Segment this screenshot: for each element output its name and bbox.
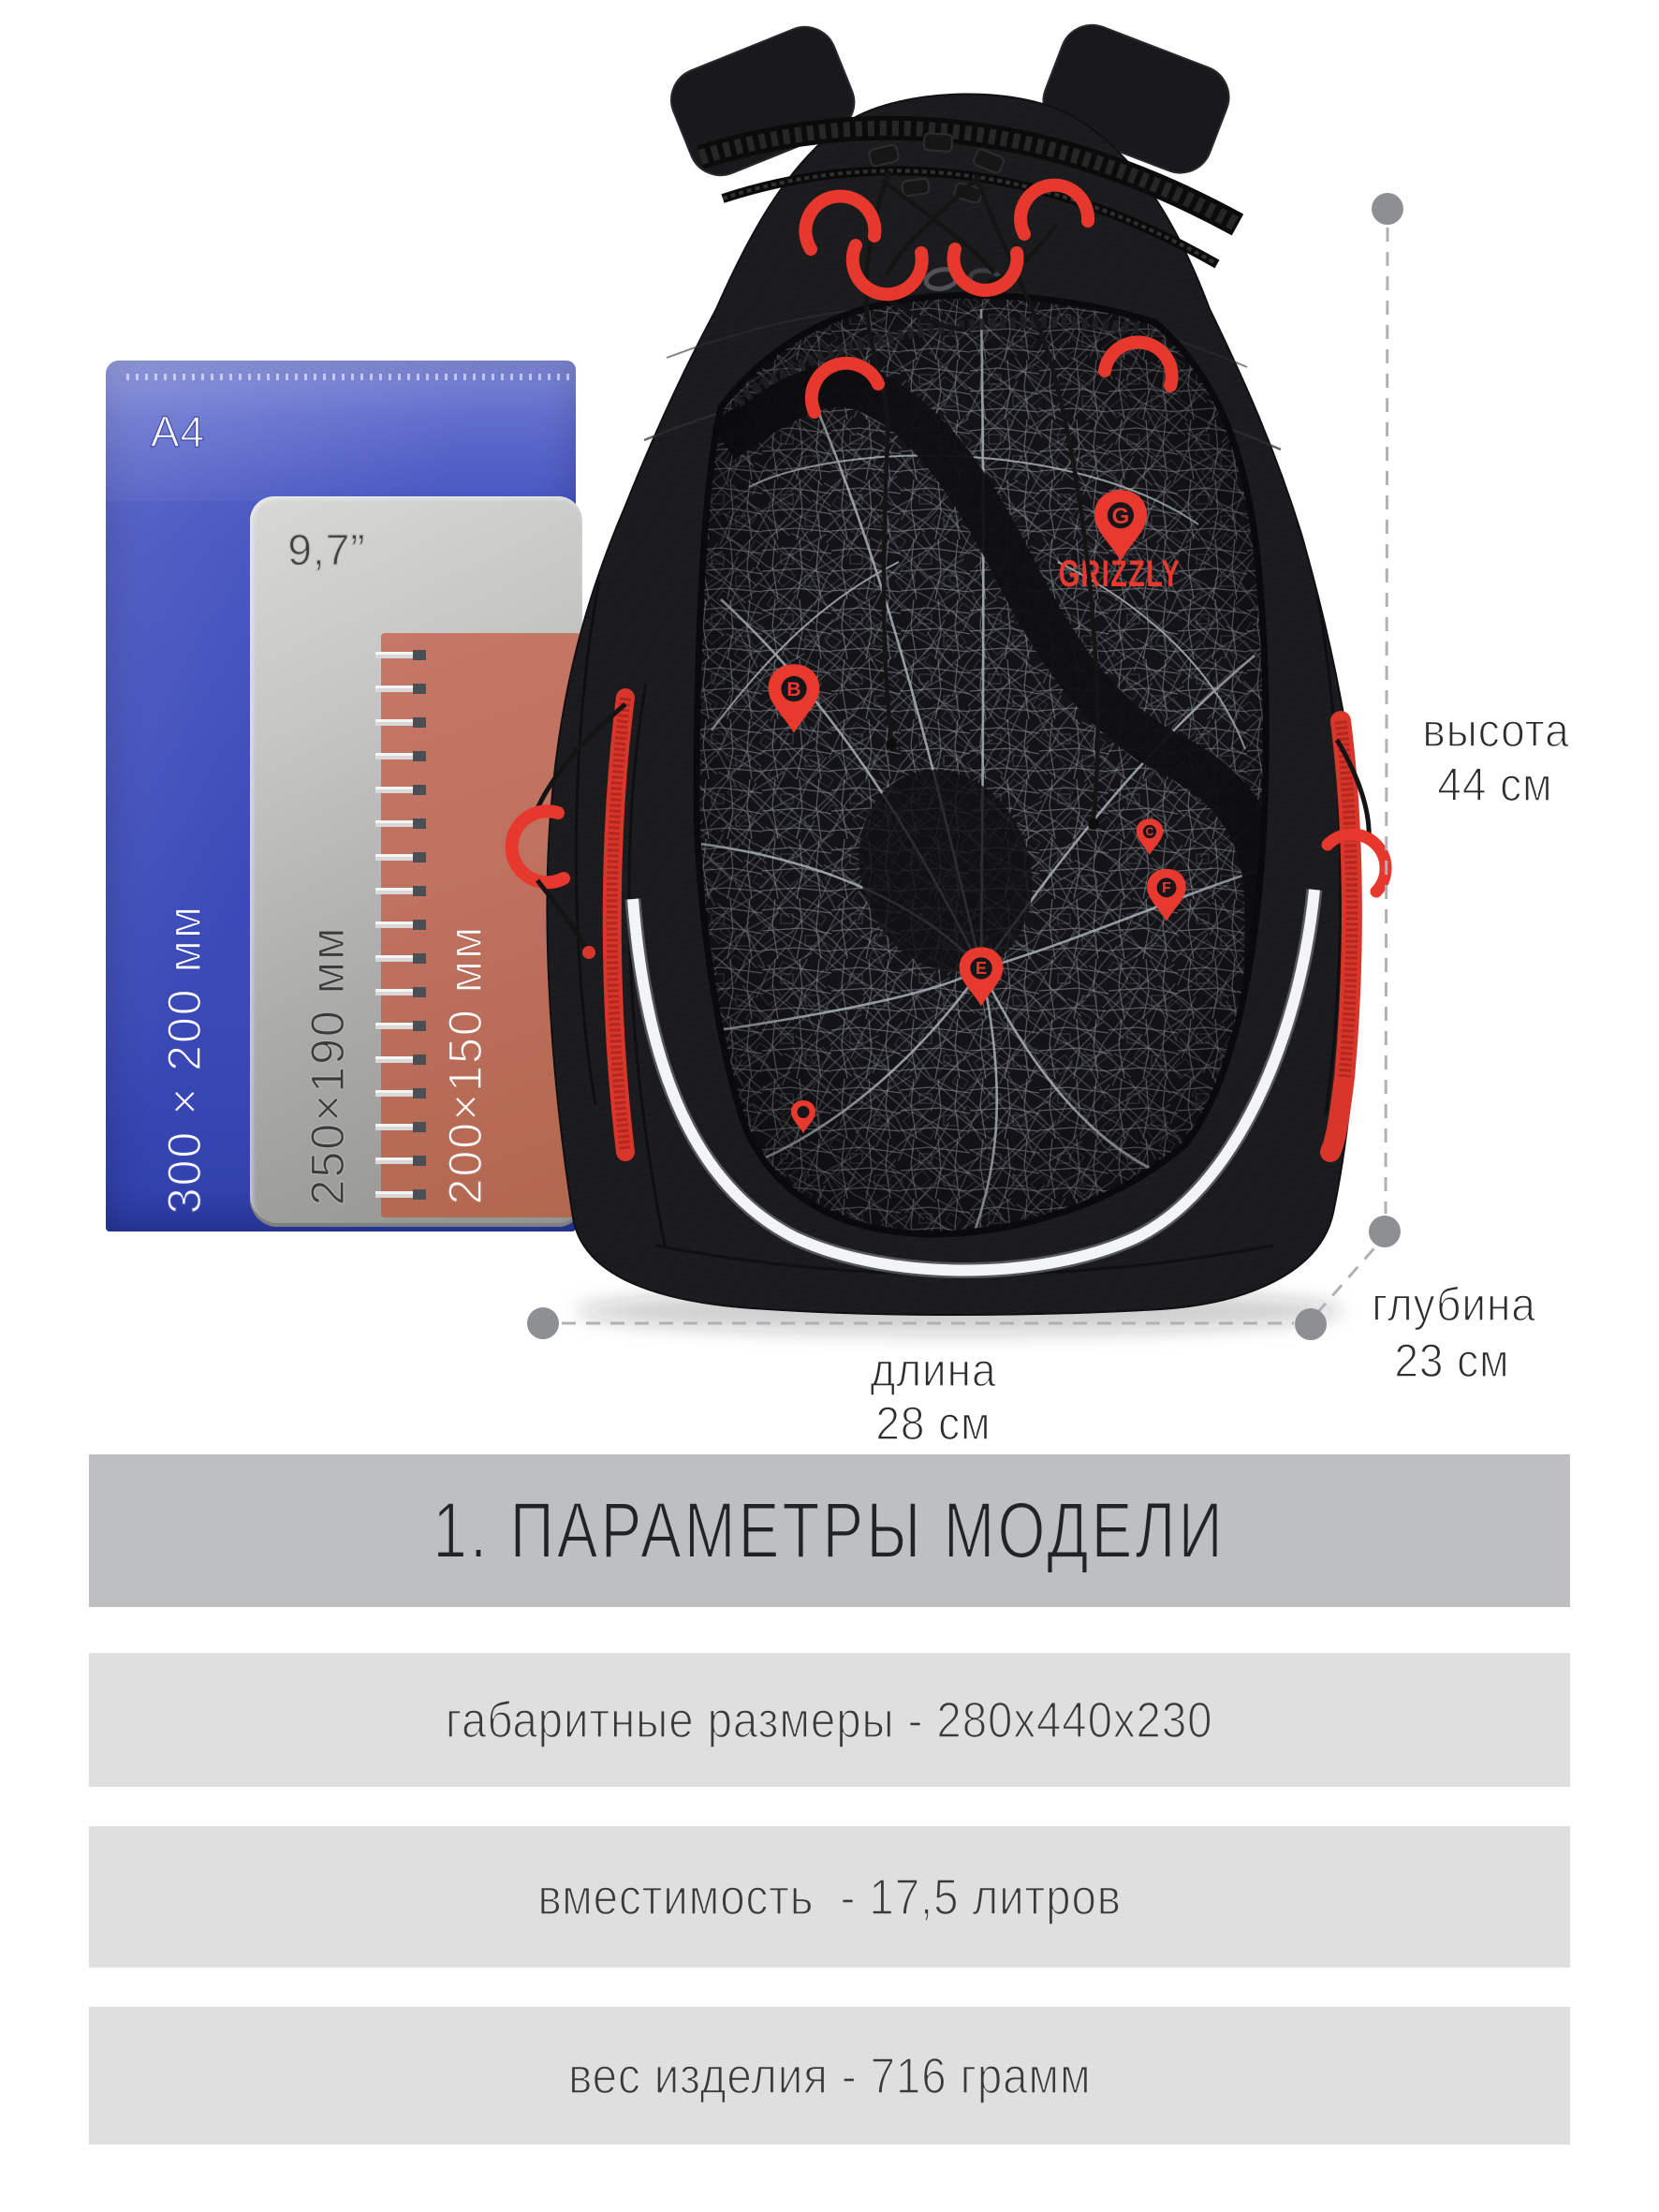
depth-value: 23 см [1394, 1334, 1509, 1388]
length-value: 28 см [875, 1396, 991, 1451]
map-pin-b-letter: B [786, 679, 800, 700]
spec-row-text: вес изделия - 716 грамм [568, 2047, 1091, 2105]
spec-row-text: вместимость - 17,5 литров [537, 1868, 1121, 1926]
spec-row-dimensions: габаритные размеры - 280х440х230 [89, 1653, 1570, 1787]
tablet-screen-label: 9,7” [287, 524, 365, 575]
logo-pin-letter: G [1112, 504, 1130, 529]
folder-size-label: 300 × 200 мм [157, 905, 212, 1214]
product-infographic: G GRIZZLY B C F E [0, 0, 1659, 2212]
spec-row-weight: вес изделия - 716 грамм [89, 2007, 1570, 2145]
length-label: длина [871, 1343, 997, 1397]
depth-label: глубина [1372, 1277, 1536, 1332]
spec-row-capacity: вместимость - 17,5 литров [89, 1826, 1570, 1968]
notebook-size-label: 200×150 мм [438, 925, 492, 1205]
brand-wordmark: GRIZZLY [1059, 553, 1182, 595]
spec-row-text: габаритные размеры - 280х440х230 [446, 1691, 1213, 1749]
height-value: 44 см [1437, 758, 1552, 812]
map-pin-c-letter: C [1146, 825, 1154, 838]
map-pin-f-letter: F [1162, 880, 1171, 896]
tablet-size-label: 250×190 мм [301, 926, 355, 1206]
specs-title: 1. ПАРАМЕТРЫ МОДЕЛИ [433, 1485, 1226, 1576]
folder-format-label: A4 [151, 406, 205, 457]
map-pin-e-letter: E [976, 959, 987, 978]
specs-header-banner: 1. ПАРАМЕТРЫ МОДЕЛИ [89, 1454, 1570, 1607]
height-label: высота [1422, 703, 1569, 758]
